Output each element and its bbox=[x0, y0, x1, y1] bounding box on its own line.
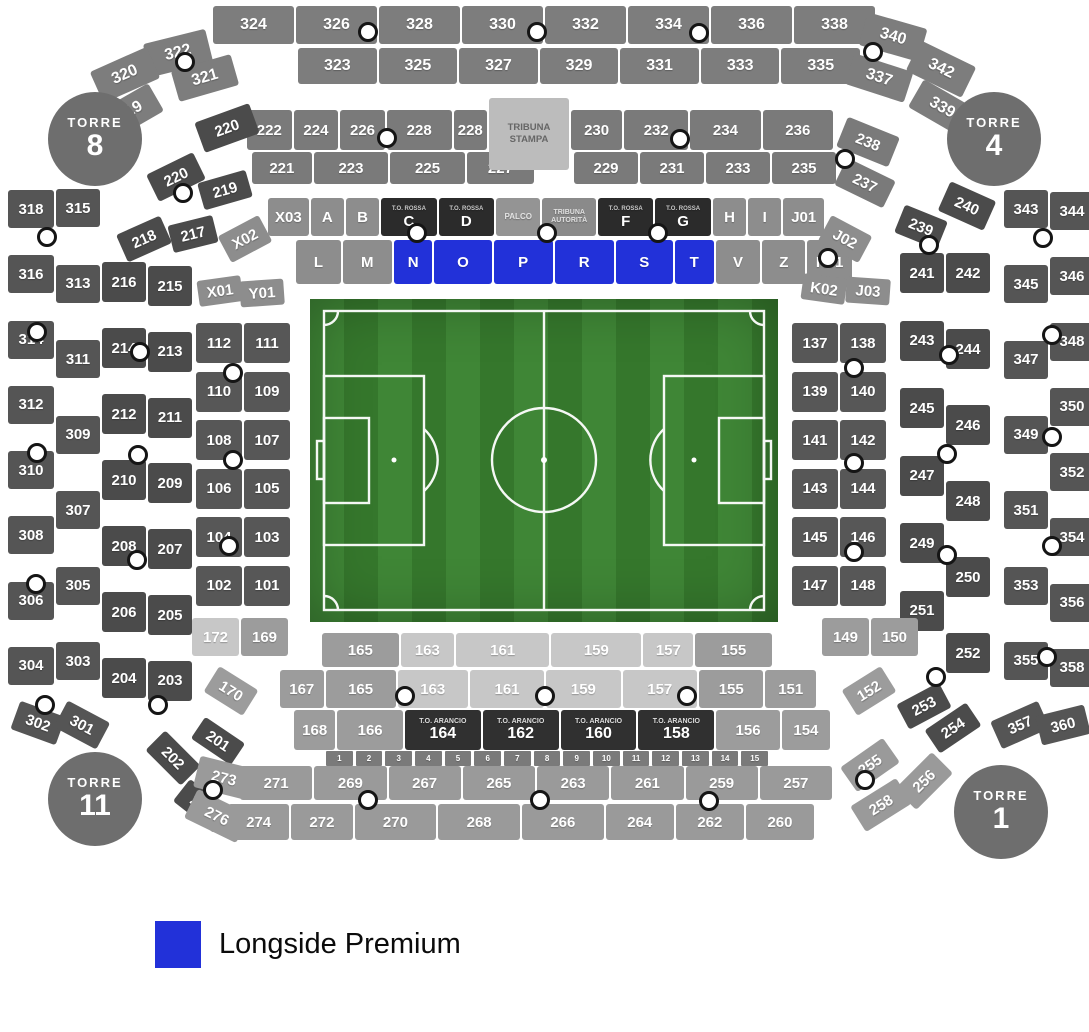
section-label: 167 bbox=[289, 682, 314, 697]
section-210[interactable]: 210 bbox=[102, 460, 146, 500]
section-o[interactable]: O bbox=[434, 240, 491, 284]
section-257[interactable]: 257 bbox=[760, 766, 832, 800]
section-label: 358 bbox=[1059, 660, 1084, 675]
section-label: 159 bbox=[571, 682, 596, 697]
section-l[interactable]: L bbox=[296, 240, 341, 284]
gate-icon bbox=[1037, 647, 1057, 667]
section-label: 152 bbox=[854, 678, 883, 704]
section-label: 11 bbox=[632, 755, 640, 763]
section-label: 142 bbox=[850, 433, 875, 448]
section-147[interactable]: 147 bbox=[792, 566, 838, 606]
section-344[interactable]: 344 bbox=[1050, 192, 1089, 230]
section-label: R bbox=[579, 255, 590, 270]
section-266[interactable]: 266 bbox=[522, 804, 604, 840]
gate-icon bbox=[844, 358, 864, 378]
section-343[interactable]: 343 bbox=[1004, 190, 1048, 228]
section-312[interactable]: 312 bbox=[8, 386, 54, 424]
section-267[interactable]: 267 bbox=[389, 766, 461, 800]
section-252[interactable]: 252 bbox=[946, 633, 990, 673]
section-f[interactable]: T.O. ROSSAF bbox=[598, 198, 653, 236]
section-304[interactable]: 304 bbox=[8, 647, 54, 685]
gate-icon bbox=[863, 42, 883, 62]
section-label: 331 bbox=[646, 58, 673, 74]
section-165[interactable]: 165 bbox=[322, 633, 399, 667]
section-label: 261 bbox=[635, 776, 660, 791]
section-158[interactable]: T.O. ARANCIO158 bbox=[638, 710, 714, 750]
section-label: 105 bbox=[254, 481, 279, 496]
section-label: PALCO bbox=[505, 213, 532, 221]
section-236[interactable]: 236 bbox=[763, 110, 833, 150]
section-216[interactable]: 216 bbox=[102, 262, 146, 302]
section-156[interactable]: 156 bbox=[716, 710, 779, 750]
section-4[interactable]: 4 bbox=[415, 751, 442, 766]
section-209[interactable]: 209 bbox=[148, 463, 192, 503]
section-j03[interactable]: J03 bbox=[845, 276, 891, 305]
tier1-bottom-row3: 168166T.O. ARANCIO164T.O. ARANCIO162T.O.… bbox=[294, 710, 830, 750]
section-242[interactable]: 242 bbox=[946, 253, 990, 293]
section-label: 155 bbox=[719, 682, 744, 697]
section-label: 343 bbox=[1013, 202, 1038, 217]
section-label: 335 bbox=[807, 58, 834, 74]
section-327[interactable]: 327 bbox=[459, 48, 538, 84]
section-label: 164 bbox=[429, 726, 456, 742]
section-label: 259 bbox=[709, 776, 734, 791]
section-170[interactable]: 170 bbox=[204, 666, 259, 716]
section-label: 202 bbox=[159, 744, 187, 772]
section-label: 337 bbox=[864, 66, 894, 89]
section-v[interactable]: V bbox=[716, 240, 761, 284]
section-139[interactable]: 139 bbox=[792, 372, 838, 412]
section-318[interactable]: 318 bbox=[8, 190, 54, 228]
section-356[interactable]: 356 bbox=[1050, 584, 1089, 622]
section-label: 109 bbox=[254, 384, 279, 399]
section-label: X01 bbox=[206, 282, 235, 301]
section-152[interactable]: 152 bbox=[842, 666, 897, 716]
section-248[interactable]: 248 bbox=[946, 481, 990, 521]
section-label: 205 bbox=[157, 608, 182, 623]
gate-icon bbox=[939, 345, 959, 365]
section-140[interactable]: 140 bbox=[840, 372, 886, 412]
section-label: 225 bbox=[415, 161, 440, 176]
ring3-left-col-inner: 315313311309307305303 bbox=[56, 189, 100, 680]
section-label: 244 bbox=[955, 342, 980, 357]
torre-8-number: 8 bbox=[87, 129, 104, 163]
section-label: 103 bbox=[254, 530, 279, 545]
section-207[interactable]: 207 bbox=[148, 529, 192, 569]
gate-icon bbox=[1033, 228, 1053, 248]
section-label: 149 bbox=[833, 630, 858, 645]
section-label: 321 bbox=[190, 67, 220, 90]
section-107[interactable]: 107 bbox=[244, 420, 290, 460]
ring3-left-col-outer: 318316314312310308306304 bbox=[8, 190, 54, 685]
section-label: 161 bbox=[490, 643, 515, 658]
section-label: 172 bbox=[203, 630, 228, 645]
section-label: 3 bbox=[396, 755, 400, 763]
section-label: 108 bbox=[206, 433, 231, 448]
section-label: 250 bbox=[955, 570, 980, 585]
section-15[interactable]: 15 bbox=[741, 751, 768, 766]
section-label: 213 bbox=[157, 344, 182, 359]
legend: Longside Premium bbox=[155, 921, 461, 968]
section-221[interactable]: 221 bbox=[252, 152, 312, 184]
section-143[interactable]: 143 bbox=[792, 469, 838, 509]
section-label: 263 bbox=[561, 776, 586, 791]
section-t[interactable]: T bbox=[675, 240, 714, 284]
section-109[interactable]: 109 bbox=[244, 372, 290, 412]
section-10[interactable]: 10 bbox=[593, 751, 620, 766]
gate-icon bbox=[527, 22, 547, 42]
section-d[interactable]: T.O. ROSSAD bbox=[439, 198, 494, 236]
section-label: 315 bbox=[65, 201, 90, 216]
section-label: 154 bbox=[793, 723, 818, 738]
section-149[interactable]: 149 bbox=[822, 618, 869, 656]
section-234[interactable]: 234 bbox=[690, 110, 760, 150]
section-224[interactable]: 224 bbox=[294, 110, 339, 150]
section-265[interactable]: 265 bbox=[463, 766, 535, 800]
section-label: 260 bbox=[767, 815, 792, 830]
section-303[interactable]: 303 bbox=[56, 642, 100, 680]
section-345[interactable]: 345 bbox=[1004, 265, 1048, 303]
section-i[interactable]: I bbox=[748, 198, 781, 236]
section-label: 223 bbox=[338, 161, 363, 176]
section-label: 269 bbox=[338, 776, 363, 791]
section-148[interactable]: 148 bbox=[840, 566, 886, 606]
section-r[interactable]: R bbox=[555, 240, 614, 284]
section-label: 222 bbox=[257, 123, 282, 138]
section-1[interactable]: 1 bbox=[326, 751, 353, 766]
section-caption: T.O. ROSSA bbox=[609, 206, 643, 212]
section-103[interactable]: 103 bbox=[244, 517, 290, 557]
section-360[interactable]: 360 bbox=[1035, 704, 1089, 745]
section-112[interactable]: 112 bbox=[196, 323, 242, 363]
section-label: 320 bbox=[110, 62, 141, 87]
section-2[interactable]: 2 bbox=[356, 751, 383, 766]
gate-icon bbox=[835, 149, 855, 169]
section-9[interactable]: 9 bbox=[563, 751, 590, 766]
section-159[interactable]: 159 bbox=[551, 633, 641, 667]
section-259[interactable]: 259 bbox=[686, 766, 758, 800]
section-label: 248 bbox=[955, 494, 980, 509]
section-352[interactable]: 352 bbox=[1050, 453, 1089, 491]
gate-icon bbox=[689, 23, 709, 43]
section-159[interactable]: 159 bbox=[546, 670, 620, 708]
section-233[interactable]: 233 bbox=[706, 152, 770, 184]
section-5[interactable]: 5 bbox=[445, 751, 472, 766]
section-label: 140 bbox=[850, 384, 875, 399]
section-label: 257 bbox=[783, 776, 808, 791]
section-label: 170 bbox=[216, 678, 245, 704]
ring2-right-col-outer: 242244246248250252 bbox=[946, 253, 990, 673]
section-label: 270 bbox=[383, 815, 408, 830]
section-label: 168 bbox=[302, 723, 327, 738]
section-231[interactable]: 231 bbox=[640, 152, 704, 184]
section-228[interactable]: 228 bbox=[387, 110, 452, 150]
section-167[interactable]: 167 bbox=[280, 670, 324, 708]
section-329[interactable]: 329 bbox=[540, 48, 619, 84]
section-x01[interactable]: X01 bbox=[196, 275, 243, 307]
section-346[interactable]: 346 bbox=[1050, 257, 1089, 295]
longside-premium-row: LMNOPRSTVZK01 bbox=[296, 240, 852, 284]
section-331[interactable]: 331 bbox=[620, 48, 699, 84]
section-315[interactable]: 315 bbox=[56, 189, 100, 227]
section-x03[interactable]: X03 bbox=[268, 198, 309, 236]
ring2-top-row2-right: 229231233235 bbox=[574, 152, 836, 184]
section-235[interactable]: 235 bbox=[772, 152, 836, 184]
gate-number-strip: 123456789101112131415 bbox=[326, 751, 768, 766]
section-313[interactable]: 313 bbox=[56, 265, 100, 303]
section-351[interactable]: 351 bbox=[1004, 491, 1048, 529]
gate-icon bbox=[127, 550, 147, 570]
section-161[interactable]: 161 bbox=[456, 633, 549, 667]
gate-icon bbox=[670, 129, 690, 149]
section-13[interactable]: 13 bbox=[682, 751, 709, 766]
section-324[interactable]: 324 bbox=[213, 6, 294, 44]
section-163[interactable]: 163 bbox=[401, 633, 454, 667]
section-353[interactable]: 353 bbox=[1004, 567, 1048, 605]
section-label: 139 bbox=[802, 384, 827, 399]
section-144[interactable]: 144 bbox=[840, 469, 886, 509]
section-label: 215 bbox=[157, 279, 182, 294]
section-336[interactable]: 336 bbox=[711, 6, 792, 44]
section-211[interactable]: 211 bbox=[148, 398, 192, 438]
section-157[interactable]: 157 bbox=[643, 633, 693, 667]
section-307[interactable]: 307 bbox=[56, 491, 100, 529]
gate-icon bbox=[223, 450, 243, 470]
section-218[interactable]: 218 bbox=[116, 216, 172, 263]
section-label: 344 bbox=[1059, 204, 1084, 219]
section-141[interactable]: 141 bbox=[792, 420, 838, 460]
section-325[interactable]: 325 bbox=[379, 48, 458, 84]
section-label: 312 bbox=[18, 397, 43, 412]
section-332[interactable]: 332 bbox=[545, 6, 626, 44]
gate-icon bbox=[699, 791, 719, 811]
section-label: 218 bbox=[130, 227, 159, 251]
section-j01[interactable]: J01 bbox=[783, 198, 824, 236]
section-label: 342 bbox=[925, 56, 956, 82]
section-165[interactable]: 165 bbox=[326, 670, 396, 708]
section-217[interactable]: 217 bbox=[167, 215, 218, 253]
section-caption: T.O. ARANCIO bbox=[497, 718, 544, 725]
section-106[interactable]: 106 bbox=[196, 469, 242, 509]
section-206[interactable]: 206 bbox=[102, 592, 146, 632]
section-label: 240 bbox=[953, 194, 982, 218]
section-palco[interactable]: PALCO bbox=[496, 198, 540, 236]
torre-4-label: TORRE bbox=[966, 115, 1021, 130]
section-350[interactable]: 350 bbox=[1050, 388, 1089, 426]
section-225[interactable]: 225 bbox=[390, 152, 465, 184]
section-260[interactable]: 260 bbox=[746, 804, 814, 840]
section-212[interactable]: 212 bbox=[102, 394, 146, 434]
section-label: M bbox=[361, 255, 374, 270]
torre-4-number: 4 bbox=[986, 129, 1003, 163]
gate-icon bbox=[377, 128, 397, 148]
section-155[interactable]: 155 bbox=[699, 670, 764, 708]
section-6[interactable]: 6 bbox=[474, 751, 501, 766]
section-230[interactable]: 230 bbox=[571, 110, 622, 150]
section-label: X02 bbox=[230, 226, 261, 252]
section-label: 351 bbox=[1013, 503, 1038, 518]
section-229[interactable]: 229 bbox=[574, 152, 638, 184]
section-102[interactable]: 102 bbox=[196, 566, 242, 606]
section-label: 304 bbox=[18, 658, 43, 673]
section-label: 219 bbox=[211, 179, 239, 200]
section-154[interactable]: 154 bbox=[782, 710, 830, 750]
section-138[interactable]: 138 bbox=[840, 323, 886, 363]
section-label: 356 bbox=[1059, 595, 1084, 610]
section-label: A bbox=[322, 210, 333, 225]
section-311[interactable]: 311 bbox=[56, 340, 100, 378]
section-164[interactable]: T.O. ARANCIO164 bbox=[405, 710, 481, 750]
section-243[interactable]: 243 bbox=[900, 321, 944, 361]
section-h[interactable]: H bbox=[713, 198, 746, 236]
section-label: L bbox=[314, 255, 323, 270]
section-261[interactable]: 261 bbox=[611, 766, 683, 800]
legend-label: Longside Premium bbox=[219, 928, 461, 961]
section-337[interactable]: 337 bbox=[845, 53, 914, 103]
gate-icon bbox=[27, 322, 47, 342]
section-label: 162 bbox=[507, 726, 534, 742]
section-label: S bbox=[639, 255, 649, 270]
section-14[interactable]: 14 bbox=[712, 751, 739, 766]
section-308[interactable]: 308 bbox=[8, 516, 54, 554]
section-137[interactable]: 137 bbox=[792, 323, 838, 363]
section-272[interactable]: 272 bbox=[291, 804, 352, 840]
section-label: 309 bbox=[65, 427, 90, 442]
section-label: 112 bbox=[207, 336, 231, 351]
section-215[interactable]: 215 bbox=[148, 266, 192, 306]
football-pitch bbox=[310, 299, 778, 622]
section-label: 243 bbox=[909, 333, 934, 348]
section-label: 15 bbox=[750, 755, 759, 763]
section-7[interactable]: 7 bbox=[504, 751, 531, 766]
section-label: 13 bbox=[691, 755, 700, 763]
section-347[interactable]: 347 bbox=[1004, 341, 1048, 379]
section-label: 211 bbox=[158, 410, 182, 425]
section-tribuna-stampa[interactable]: TRIBUNA STAMPA bbox=[489, 98, 569, 170]
section-label: 137 bbox=[802, 336, 827, 351]
section-b[interactable]: B bbox=[346, 198, 379, 236]
section-172[interactable]: 172 bbox=[192, 618, 239, 656]
section-n[interactable]: N bbox=[394, 240, 433, 284]
section-label: 249 bbox=[909, 536, 934, 551]
section-219[interactable]: 219 bbox=[197, 170, 253, 211]
section-246[interactable]: 246 bbox=[946, 405, 990, 445]
gate-icon bbox=[395, 686, 415, 706]
section-y01[interactable]: Y01 bbox=[239, 278, 285, 307]
section-245[interactable]: 245 bbox=[900, 388, 944, 428]
section-label: 262 bbox=[697, 815, 722, 830]
section-label: P bbox=[518, 255, 528, 270]
section-204[interactable]: 204 bbox=[102, 658, 146, 698]
gate-icon bbox=[855, 770, 875, 790]
section-151[interactable]: 151 bbox=[765, 670, 816, 708]
pitch-lines-icon bbox=[310, 299, 778, 622]
gate-icon bbox=[26, 574, 46, 594]
section-328[interactable]: 328 bbox=[379, 6, 460, 44]
section-323[interactable]: 323 bbox=[298, 48, 377, 84]
section-label: 106 bbox=[206, 481, 231, 496]
gate-icon bbox=[535, 686, 555, 706]
section-label: 165 bbox=[348, 682, 373, 697]
section-s[interactable]: S bbox=[616, 240, 673, 284]
section-169[interactable]: 169 bbox=[241, 618, 288, 656]
section-305[interactable]: 305 bbox=[56, 567, 100, 605]
section-223[interactable]: 223 bbox=[314, 152, 389, 184]
section-label: 221 bbox=[269, 161, 294, 176]
section-268[interactable]: 268 bbox=[438, 804, 520, 840]
section-333[interactable]: 333 bbox=[701, 48, 780, 84]
section-11[interactable]: 11 bbox=[623, 751, 650, 766]
section-label: D bbox=[461, 214, 472, 229]
section-label: 258 bbox=[866, 792, 895, 818]
section-150[interactable]: 150 bbox=[871, 618, 918, 656]
section-z[interactable]: Z bbox=[762, 240, 805, 284]
section-label: 110 bbox=[207, 384, 231, 399]
section-145[interactable]: 145 bbox=[792, 517, 838, 557]
section-label: 212 bbox=[111, 407, 136, 422]
section-x02[interactable]: X02 bbox=[218, 215, 273, 263]
gate-icon bbox=[1042, 427, 1062, 447]
section-label: 10 bbox=[602, 755, 611, 763]
section-label: 303 bbox=[65, 654, 90, 669]
section-111[interactable]: 111 bbox=[244, 323, 290, 363]
section-k02[interactable]: K02 bbox=[800, 273, 847, 305]
section-label: 8 bbox=[545, 755, 549, 763]
section-166[interactable]: 166 bbox=[337, 710, 403, 750]
section-label: 245 bbox=[909, 401, 934, 416]
section-162[interactable]: T.O. ARANCIO162 bbox=[483, 710, 559, 750]
section-160[interactable]: T.O. ARANCIO160 bbox=[561, 710, 637, 750]
gate-icon bbox=[1042, 536, 1062, 556]
section-label: 333 bbox=[727, 58, 754, 74]
section-155[interactable]: 155 bbox=[695, 633, 772, 667]
section-3[interactable]: 3 bbox=[385, 751, 412, 766]
tier1-left-col-inner: 111109107105103101 bbox=[244, 323, 290, 606]
section-213[interactable]: 213 bbox=[148, 332, 192, 372]
section-label: 313 bbox=[65, 276, 90, 291]
section-label: Z bbox=[779, 255, 788, 270]
tier1-bottom-corner-right: 149150 bbox=[822, 618, 918, 656]
section-105[interactable]: 105 bbox=[244, 469, 290, 509]
gate-icon bbox=[844, 453, 864, 473]
ring2-left-col-inner: 215213211209207205203 bbox=[148, 266, 192, 701]
section-228[interactable]: 228 bbox=[454, 110, 487, 150]
section-label: 101 bbox=[254, 578, 279, 593]
section-264[interactable]: 264 bbox=[606, 804, 674, 840]
section-p[interactable]: P bbox=[494, 240, 553, 284]
section-168[interactable]: 168 bbox=[294, 710, 335, 750]
section-a[interactable]: A bbox=[311, 198, 344, 236]
section-12[interactable]: 12 bbox=[652, 751, 679, 766]
section-241[interactable]: 241 bbox=[900, 253, 944, 293]
section-label: 155 bbox=[721, 643, 746, 658]
section-label: 156 bbox=[736, 723, 761, 738]
section-161[interactable]: 161 bbox=[470, 670, 544, 708]
section-301[interactable]: 301 bbox=[54, 700, 110, 749]
section-316[interactable]: 316 bbox=[8, 255, 54, 293]
section-205[interactable]: 205 bbox=[148, 595, 192, 635]
section-247[interactable]: 247 bbox=[900, 456, 944, 496]
section-label: J01 bbox=[791, 210, 816, 225]
gate-icon bbox=[919, 235, 939, 255]
section-label: 203 bbox=[157, 673, 182, 688]
ring2-top-row1-right: 230232234236 bbox=[571, 110, 833, 150]
section-label: 238 bbox=[854, 130, 883, 153]
section-m[interactable]: M bbox=[343, 240, 392, 284]
section-101[interactable]: 101 bbox=[244, 566, 290, 606]
section-8[interactable]: 8 bbox=[534, 751, 561, 766]
section-309[interactable]: 309 bbox=[56, 416, 100, 454]
